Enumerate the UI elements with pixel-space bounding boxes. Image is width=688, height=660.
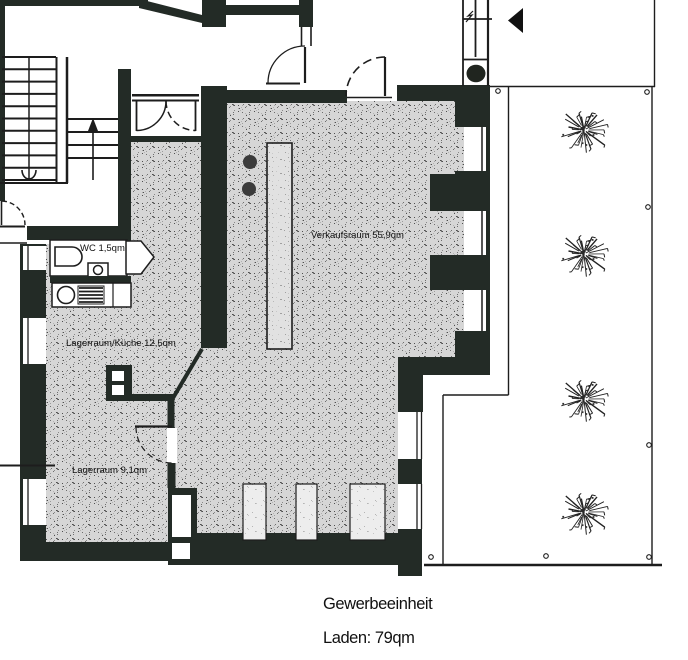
svg-text:Lagerraum 9,1qm: Lagerraum 9,1qm [72,465,147,476]
svg-text:Verkaufsraum 55,9qm: Verkaufsraum 55,9qm [311,230,404,241]
svg-text:Lagerraum/Küche 12,5qm: Lagerraum/Küche 12,5qm [66,338,176,349]
svg-text:WC 1,5qm: WC 1,5qm [80,243,125,254]
